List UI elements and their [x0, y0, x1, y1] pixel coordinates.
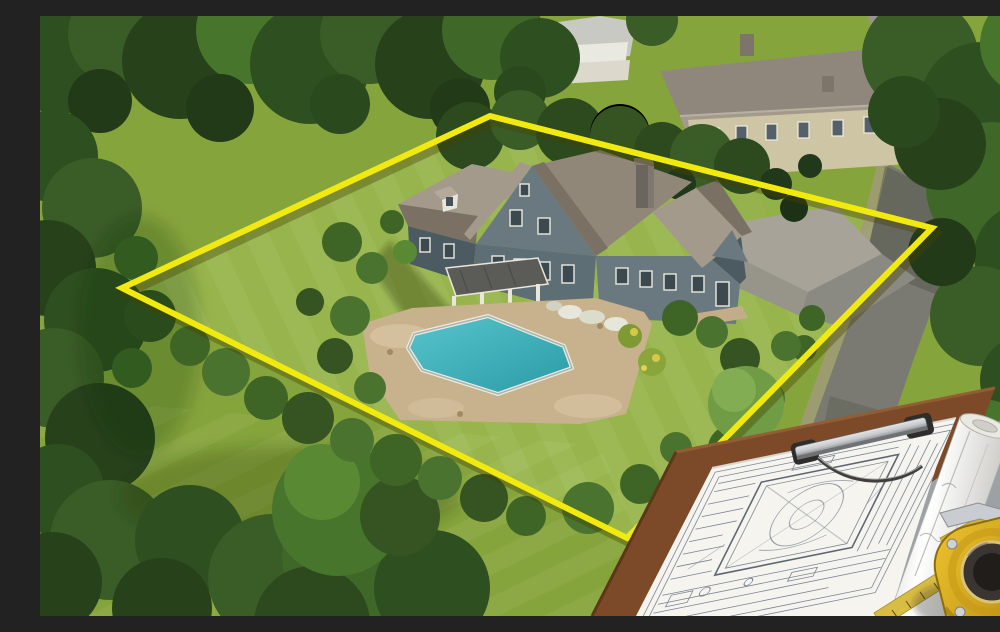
pool-area — [362, 298, 652, 424]
aerial-property-photo: Aerial drone photograph of a suburban es… — [40, 16, 1000, 616]
photo-canvas — [40, 16, 1000, 616]
